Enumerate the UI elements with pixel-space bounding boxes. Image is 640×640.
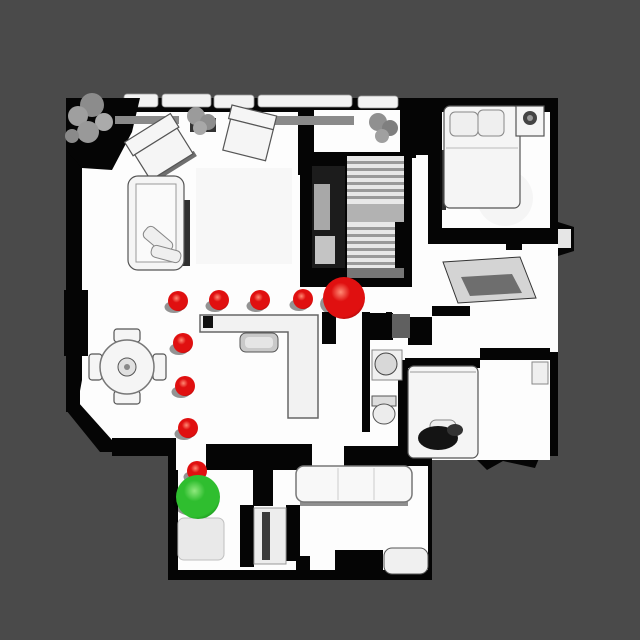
staircase [312,156,404,278]
wall-bottom-c [206,444,312,470]
rug [178,518,224,560]
sofa [128,176,190,270]
floor-shading-patch [196,168,292,264]
wall-bottom-c2 [253,470,273,506]
toilet-bowl [373,404,395,424]
corner-seat [384,548,428,574]
closet-door-shadow [262,512,270,560]
closet-wall-right [286,505,300,561]
threshold-mark [506,240,522,250]
fireplace-mass [64,290,88,356]
bathroom-sink [375,353,397,375]
closet-edge [386,312,392,340]
right-wall-notch [558,229,571,248]
wall-bedroom-bottom [428,228,550,244]
pillow [450,112,478,136]
wall-bathroom-left [362,312,370,432]
long-couch [296,466,412,502]
dark-mass-bottom [335,550,383,578]
open-door [443,257,536,303]
stair-bottom-band [347,268,404,278]
closet-wall-left [240,505,254,567]
side-table [532,362,548,384]
wall-bottom-b [112,438,176,456]
wall-bedroom-left [428,100,442,240]
pillow [478,110,504,136]
dark-stub-bottom [296,556,310,578]
closet-gray [390,314,410,338]
wall-hall-top [400,98,416,158]
chair-right [153,354,166,380]
wall-left-stub [66,378,80,412]
wall-stub-mid-right [432,306,470,316]
scene-viewport[interactable] [0,0,640,640]
house-scan-render [0,0,640,640]
wall-bedroom-br-top [480,348,550,360]
stair-landing [347,204,404,222]
wall-corner-corridor [322,312,336,344]
